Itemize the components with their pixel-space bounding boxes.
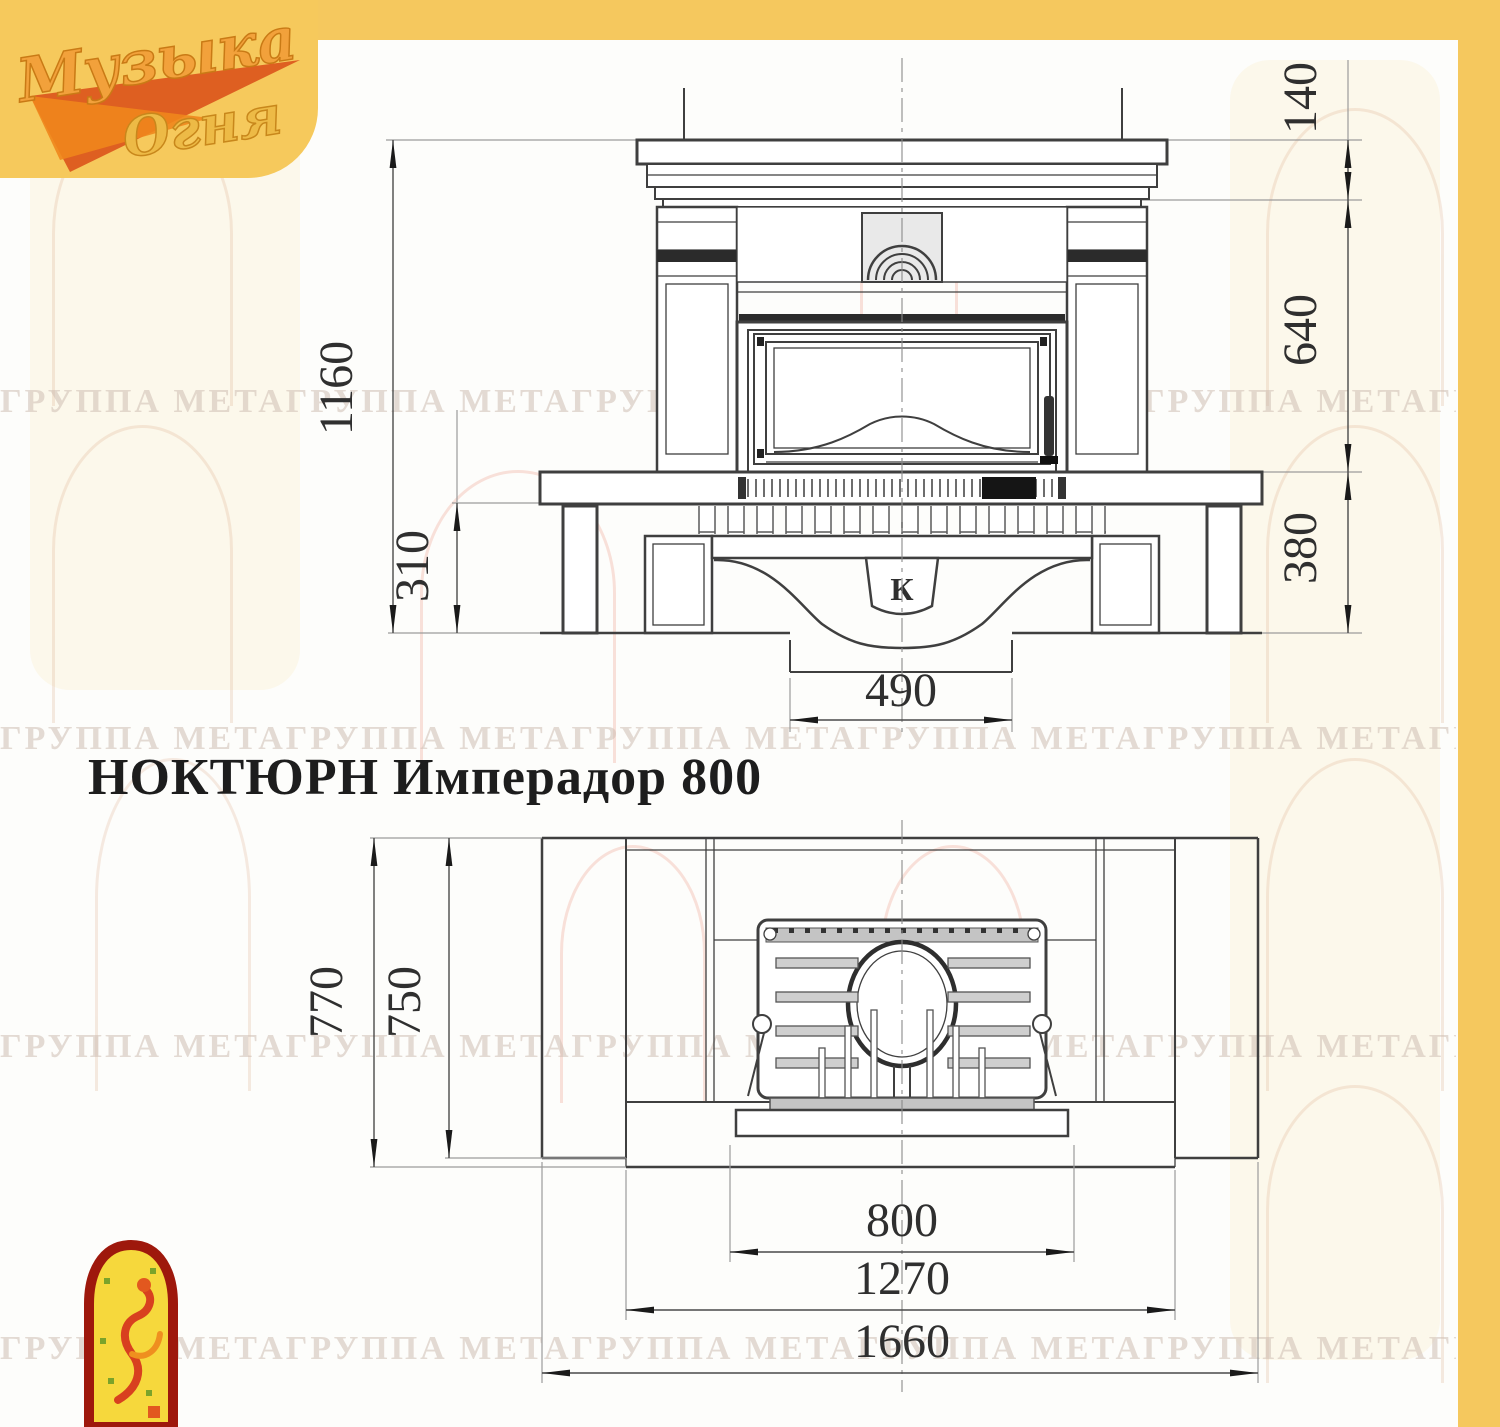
- page-title: НОКТЮРН Имперадор 800: [88, 748, 762, 807]
- emblem-dot: [148, 1406, 160, 1418]
- brand-logo: Музыка Огня: [0, 0, 318, 178]
- dim-label-inner-width: 1270: [854, 1252, 950, 1305]
- catalog-page: ГРУППА МЕТАГРУППА МЕТАГРУППА МЕТАГРУППА …: [0, 0, 1500, 1427]
- dim-label-total-depth: 770: [300, 966, 353, 1038]
- flamingo-emblem: [80, 1238, 182, 1427]
- dim-label-body-depth: 750: [378, 966, 431, 1038]
- dim-label-total-width: 1660: [854, 1315, 950, 1368]
- brand-logo-art: Музыка Огня: [0, 0, 318, 178]
- dim-label-total-height: 1160: [310, 341, 363, 435]
- dim-label-opening-height: 640: [1274, 294, 1327, 366]
- flamingo-head: [137, 1278, 151, 1292]
- dim-label-base-duct-width: 490: [865, 664, 937, 717]
- plan-view-drawing: [542, 820, 1258, 1392]
- dim-label-mantel-crown-height: 140: [1274, 62, 1327, 134]
- technical-drawing: К 1160 310 140 640 380: [0, 0, 1500, 1427]
- dim-label-hearth-to-floor: 380: [1274, 512, 1327, 584]
- right-accent-strip: [1458, 0, 1500, 1427]
- front-view-drawing: К: [386, 58, 1362, 738]
- dim-label-firebox-width: 800: [866, 1194, 938, 1247]
- dim-label-plinth-height: 310: [386, 530, 439, 602]
